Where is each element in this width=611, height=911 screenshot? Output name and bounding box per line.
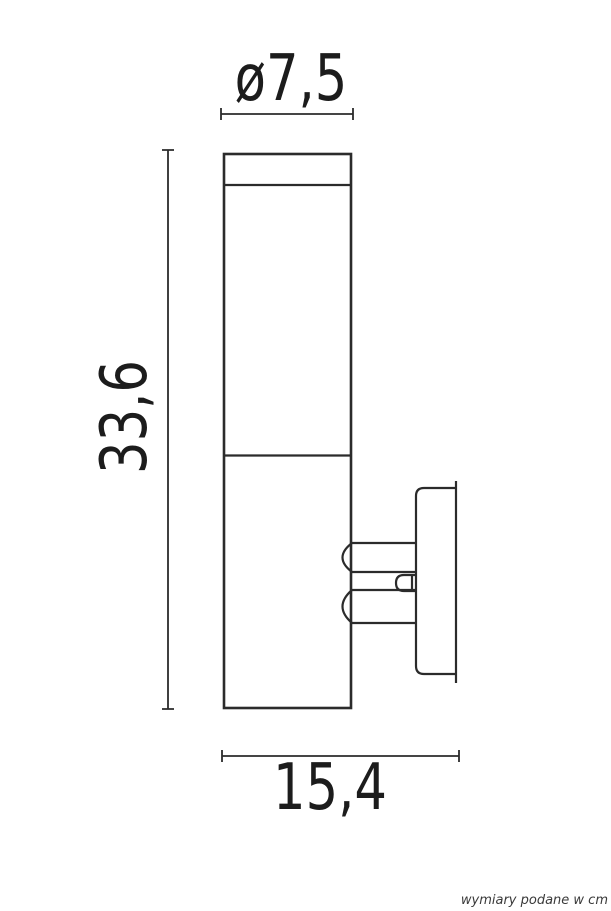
units-footnote: wymiary podane w cm xyxy=(461,893,608,908)
dim-label-depth: 15,4 xyxy=(258,752,402,824)
dim-line-height xyxy=(162,150,174,709)
dim-label-height: 33,6 xyxy=(89,337,161,497)
dim-label-diameter: ø7,5 xyxy=(219,43,363,115)
lamp-tube-outline xyxy=(224,154,351,708)
wall-plate-outline xyxy=(416,488,456,674)
bracket-upper-collar xyxy=(343,543,417,572)
technical-drawing-page: ø7,5 33,6 15,4 wymiary podane w cm xyxy=(0,0,611,911)
bracket-lower-collar xyxy=(343,590,417,623)
